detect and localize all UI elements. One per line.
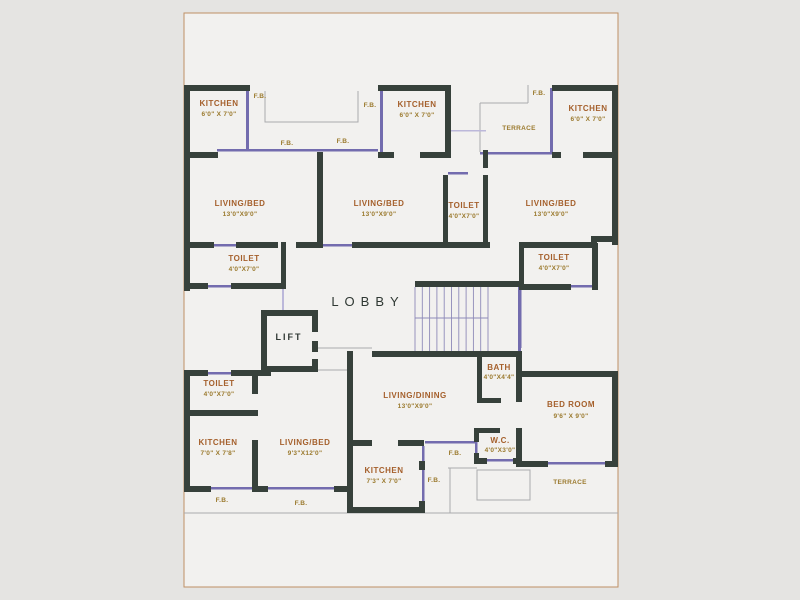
room-dims-kitchen-bottom-middle: 7'3" X 7'0" (367, 479, 402, 486)
room-label-wc: W.C. (490, 437, 509, 445)
room-dims-living-dining: 13'0"X9'0" (398, 404, 433, 411)
fb-label-6: F.B. (216, 498, 229, 505)
lobby-label: LOBBY (331, 295, 404, 308)
room-dims-toilet-right: 4'0"X7'0" (539, 266, 570, 273)
terrace-bottom-label: TERRACE (553, 480, 587, 487)
room-label-living-bed-middle: LIVING/BED (354, 200, 405, 208)
room-label-living-bed-left: LIVING/BED (215, 200, 266, 208)
room-label-toilet-middle: TOILET (448, 202, 479, 210)
room-dims-toilet-upper-left: 4'0"X7'0" (229, 267, 260, 274)
fb-label-4: F.B. (364, 103, 377, 110)
room-dims-toilet-lower-left: 4'0"X7'0" (204, 392, 235, 399)
room-label-toilet-lower-left: TOILET (203, 380, 234, 388)
room-label-toilet-right: TOILET (538, 254, 569, 262)
room-dims-toilet-middle: 4'0"X7'0" (449, 214, 480, 221)
room-label-kitchen-bottom-middle: KITCHEN (364, 467, 403, 475)
fb-label-3: F.B. (337, 139, 350, 146)
room-dims-living-bed-middle: 13'0"X9'0" (362, 212, 397, 219)
fb-label-5: F.B. (533, 91, 546, 98)
room-label-living-dining: LIVING/DINING (383, 392, 446, 400)
room-label-toilet-upper-left: TOILET (228, 255, 259, 263)
room-dims-wc: 4'0"X3'0" (485, 448, 516, 455)
room-label-living-bed-right: LIVING/BED (526, 200, 577, 208)
room-dims-living-bed-left: 13'0"X9'0" (223, 212, 258, 219)
fb-label-9: F.B. (449, 451, 462, 458)
floor-plan-page: KITCHEN 6'0" X 7'0" KITCHEN 6'0" X 7'0" … (0, 0, 800, 600)
room-dims-kitchen-top-right: 6'0" X 7'0" (571, 117, 606, 124)
fb-label-1: F.B. (254, 94, 267, 101)
room-label-kitchen-top-middle: KITCHEN (397, 101, 436, 109)
room-dims-bed-room: 9'6" X 9'0" (554, 414, 589, 421)
room-dims-living-bed-right: 13'0"X9'0" (534, 212, 569, 219)
room-label-kitchen-top-right: KITCHEN (568, 105, 607, 113)
room-label-bed-room: BED ROOM (547, 401, 595, 409)
room-label-living-bed-bottom-left: LIVING/BED (280, 439, 331, 447)
room-dims-kitchen-top-left: 6'0" X 7'0" (202, 112, 237, 119)
lift-label: LIFT (276, 333, 303, 342)
fb-label-2: F.B. (281, 141, 294, 148)
terrace-top-label: TERRACE (502, 126, 536, 133)
room-label-bath: BATH (487, 364, 511, 372)
room-label-kitchen-bottom-left: KITCHEN (198, 439, 237, 447)
fb-label-8: F.B. (428, 478, 441, 485)
room-dims-kitchen-top-middle: 6'0" X 7'0" (400, 113, 435, 120)
room-dims-living-bed-bottom-left: 9'3"X12'0" (288, 451, 323, 458)
fb-label-7: F.B. (295, 501, 308, 508)
room-dims-bath: 4'0"X4'4" (484, 375, 515, 382)
room-dims-kitchen-bottom-left: 7'0" X 7'8" (201, 451, 236, 458)
room-label-kitchen-top-left: KITCHEN (199, 100, 238, 108)
